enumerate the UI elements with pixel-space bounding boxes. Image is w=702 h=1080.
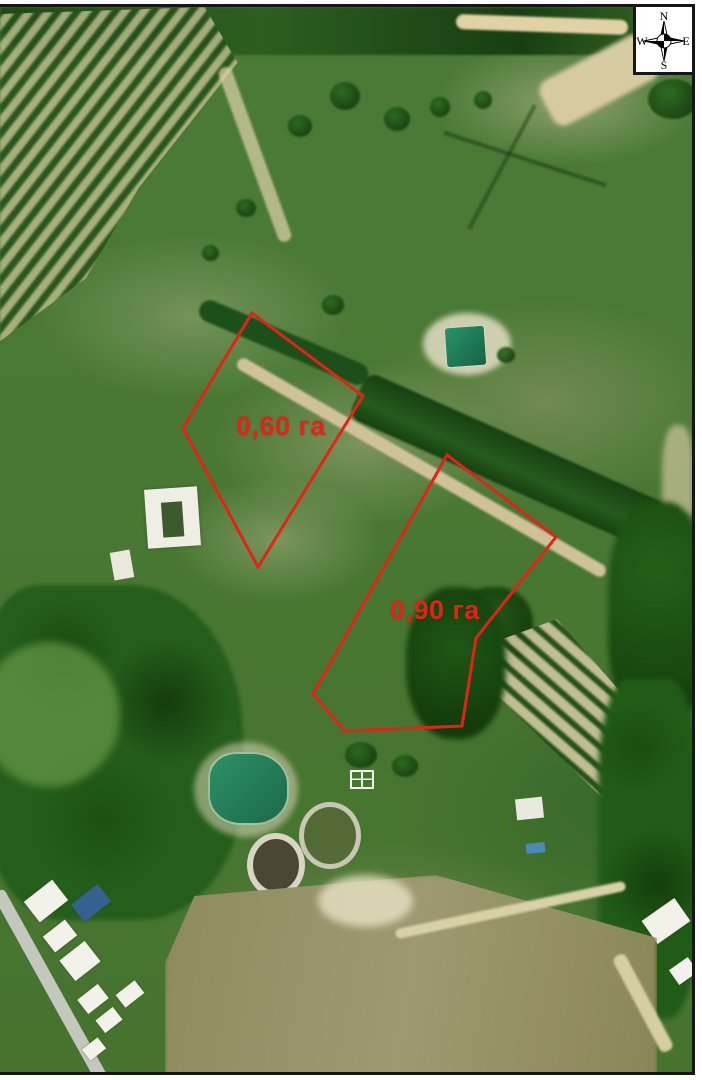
parcel-area-label-2: 0,90 га: [390, 595, 480, 626]
compass-north-label: N: [660, 9, 669, 23]
north-arrow-box: N S W E: [633, 7, 692, 75]
parcel-area-label-1: 0,60 га: [236, 411, 326, 442]
satellite-map: 0,60 га 0,90 га N S W E: [0, 4, 695, 1075]
compass-rose-icon: N S W E: [636, 9, 692, 71]
map-document-page: 0,60 га 0,90 га N S W E: [0, 0, 702, 1080]
parcel-overlay: [0, 7, 692, 1072]
parcel-boundary-2: [313, 455, 556, 731]
